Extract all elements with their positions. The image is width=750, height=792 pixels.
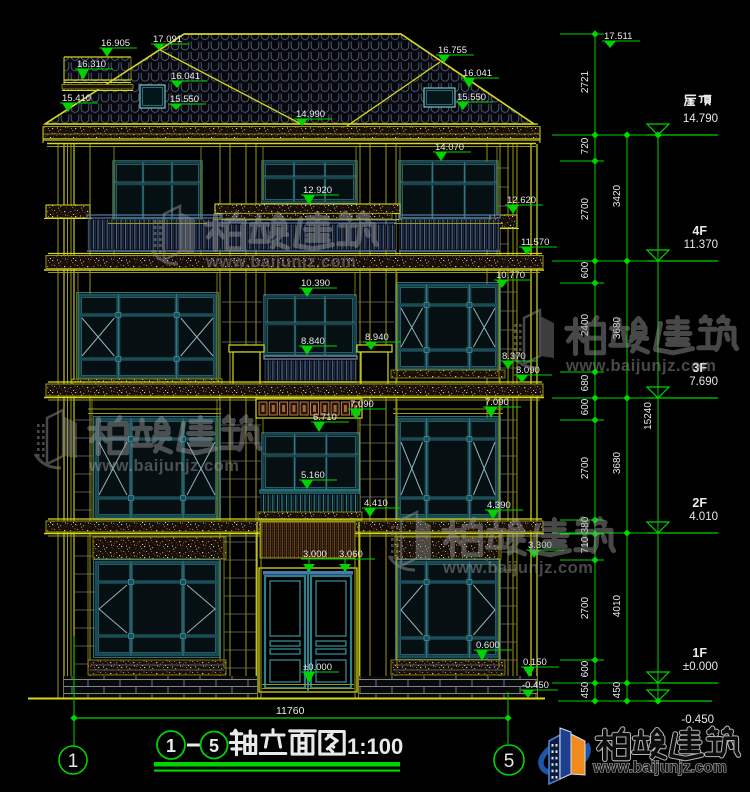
svg-text:www.baijunjz.com: www.baijunjz.com [592,759,727,776]
svg-text:1: 1 [68,751,79,772]
svg-text:1:100: 1:100 [347,734,403,759]
svg-text:720: 720 [580,137,591,154]
svg-text:7.090: 7.090 [485,397,509,408]
svg-text:11.370: 11.370 [684,239,718,251]
svg-text:11760: 11760 [276,705,305,717]
svg-text:17.091: 17.091 [153,34,182,45]
svg-text:0.150: 0.150 [523,657,547,668]
svg-text:-0.450: -0.450 [522,680,549,691]
svg-text:16.041: 16.041 [171,71,200,82]
svg-text:3680: 3680 [612,451,623,474]
svg-text:2700: 2700 [580,456,591,479]
svg-text:www.baijunjz.com: www.baijunjz.com [205,253,356,271]
svg-text:600: 600 [580,398,591,415]
svg-text:680: 680 [580,374,591,391]
svg-text:5: 5 [209,736,219,756]
svg-text:5: 5 [504,751,515,772]
svg-text:450: 450 [612,681,623,698]
svg-text:14.070: 14.070 [435,142,464,153]
svg-text:10.390: 10.390 [301,278,330,289]
svg-text:15.550: 15.550 [170,94,199,105]
svg-text:16.310: 16.310 [77,59,106,70]
svg-text:2700: 2700 [580,596,591,619]
svg-text:3420: 3420 [612,184,623,207]
svg-text:1F: 1F [692,646,707,660]
svg-text:17.511: 17.511 [604,31,632,42]
svg-text:4.390: 4.390 [487,500,511,511]
svg-text:16.905: 16.905 [101,38,130,49]
svg-text:15240: 15240 [643,402,654,430]
svg-text:2700: 2700 [580,197,591,220]
svg-text:±0.000: ±0.000 [303,662,332,673]
svg-text:1: 1 [166,736,176,756]
svg-text:10.770: 10.770 [496,270,525,281]
svg-text:-0.450: -0.450 [681,714,714,726]
svg-text:11.570: 11.570 [521,237,549,248]
svg-text:6.710: 6.710 [313,412,337,423]
svg-text:4010: 4010 [612,594,623,617]
svg-text:4.410: 4.410 [364,498,388,509]
svg-text:www.baijunjz.com: www.baijunjz.com [565,357,716,375]
svg-text:3.060: 3.060 [339,549,363,560]
svg-text:4F: 4F [692,224,707,238]
svg-text:5.160: 5.160 [301,470,325,481]
svg-text:3.000: 3.000 [303,549,327,560]
svg-text:14.990: 14.990 [296,109,325,120]
svg-text:16.755: 16.755 [438,45,467,56]
svg-text:12.920: 12.920 [303,185,332,196]
svg-text:15.550: 15.550 [457,92,486,103]
svg-text:www.baijunjz.com: www.baijunjz.com [88,457,239,475]
svg-text:8.940: 8.940 [365,332,389,343]
svg-text:600: 600 [580,261,591,278]
svg-text:15.410: 15.410 [62,93,91,104]
svg-text:8.840: 8.840 [301,336,325,347]
svg-text:16.041: 16.041 [463,68,492,79]
svg-text:7.090: 7.090 [350,399,374,410]
svg-text:7.690: 7.690 [689,376,718,388]
svg-text:12.620: 12.620 [507,195,536,206]
svg-text:14.790: 14.790 [683,113,718,125]
svg-text:±0.000: ±0.000 [683,661,718,673]
svg-text:www.baijunjz.com: www.baijunjz.com [442,559,593,577]
svg-text:0.600: 0.600 [476,640,500,651]
svg-text:600: 600 [580,660,591,677]
svg-text:2F: 2F [692,496,707,510]
svg-text:4.010: 4.010 [689,511,718,523]
svg-text:2721: 2721 [580,70,591,93]
svg-text:450: 450 [580,681,591,698]
